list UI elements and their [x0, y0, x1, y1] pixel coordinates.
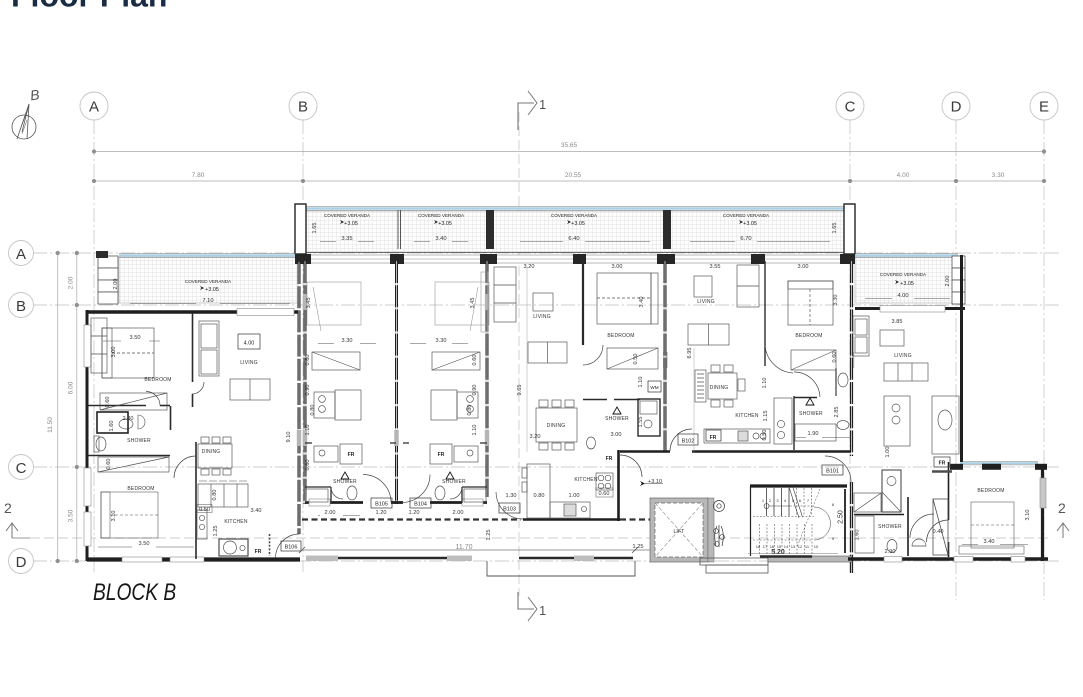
svg-text:0.60: 0.60: [599, 491, 610, 497]
svg-text:6.95: 6.95: [687, 348, 693, 359]
svg-text:7.80: 7.80: [192, 172, 205, 179]
svg-text:BEDROOM: BEDROOM: [127, 486, 154, 492]
svg-text:SHOWER: SHOWER: [127, 438, 151, 444]
svg-text:FR: FR: [710, 435, 717, 441]
svg-text:0.60: 0.60: [305, 460, 311, 471]
svg-text:1.15: 1.15: [763, 411, 769, 422]
svg-text:1.30: 1.30: [506, 493, 517, 499]
svg-text:B106: B106: [285, 545, 298, 551]
svg-text:3.30: 3.30: [833, 295, 839, 306]
svg-text:9.65: 9.65: [517, 385, 523, 396]
svg-text:B104: B104: [414, 502, 427, 508]
svg-text:2.00: 2.00: [68, 276, 75, 289]
svg-text:3.85: 3.85: [892, 319, 903, 325]
svg-text:LIVING: LIVING: [894, 353, 912, 359]
svg-text:3.00: 3.00: [111, 347, 117, 358]
svg-text:3.45: 3.45: [306, 298, 312, 309]
svg-text:COVERED VERANDA: COVERED VERANDA: [324, 213, 371, 218]
svg-text:2.85: 2.85: [834, 407, 840, 418]
svg-text:D: D: [951, 99, 962, 116]
svg-text:3.50: 3.50: [130, 335, 141, 341]
svg-text:C: C: [845, 99, 856, 116]
svg-text:6.70: 6.70: [740, 236, 751, 242]
svg-text:3.45: 3.45: [470, 298, 476, 309]
svg-text:D: D: [16, 554, 27, 571]
svg-text:0.60: 0.60: [832, 352, 838, 363]
svg-text:LIVING: LIVING: [240, 360, 258, 366]
svg-text:+3.05: +3.05: [900, 281, 914, 287]
svg-text:20.55: 20.55: [565, 172, 582, 179]
svg-text:3.50: 3.50: [139, 541, 150, 547]
svg-text:7.10: 7.10: [202, 298, 213, 304]
svg-text:2.00: 2.00: [113, 279, 119, 290]
svg-text:E: E: [1039, 99, 1049, 116]
svg-text:3.40: 3.40: [435, 236, 446, 242]
svg-text:SHOWER: SHOWER: [442, 479, 466, 485]
svg-text:35.65: 35.65: [561, 142, 578, 149]
svg-text:0.80: 0.80: [534, 493, 545, 499]
svg-text:17: 17: [763, 544, 768, 549]
svg-text:+3.05: +3.05: [344, 221, 358, 227]
svg-text:FR: FR: [348, 452, 355, 458]
svg-text:3.20: 3.20: [524, 264, 535, 270]
svg-text:1.25: 1.25: [486, 530, 492, 541]
svg-text:2: 2: [4, 500, 12, 516]
svg-text:LIVING: LIVING: [533, 314, 551, 320]
svg-text:9.10: 9.10: [286, 432, 292, 443]
svg-text:SHOWER: SHOWER: [333, 479, 357, 485]
svg-text:3.55: 3.55: [710, 264, 721, 270]
svg-text:12: 12: [798, 544, 803, 549]
svg-text:3.50: 3.50: [68, 509, 75, 522]
svg-text:10: 10: [814, 544, 819, 549]
svg-text:3.10: 3.10: [111, 511, 117, 522]
svg-text:3.40: 3.40: [639, 297, 645, 308]
svg-text:0.40: 0.40: [933, 529, 944, 535]
svg-text:1.65: 1.65: [312, 223, 318, 234]
svg-text:FR: FR: [438, 452, 445, 458]
svg-text:B101: B101: [826, 469, 839, 475]
svg-text:1: 1: [539, 97, 546, 112]
svg-text:1.00: 1.00: [569, 493, 580, 499]
svg-text:15: 15: [777, 544, 782, 549]
svg-text:3.10: 3.10: [1025, 510, 1031, 521]
svg-text:0.60: 0.60: [472, 355, 478, 366]
svg-text:18: 18: [756, 544, 761, 549]
svg-text:DINING: DINING: [547, 423, 566, 429]
svg-text:DINING: DINING: [710, 385, 729, 391]
svg-text:0.90: 0.90: [305, 385, 311, 396]
svg-text:COVERED VERANDA: COVERED VERANDA: [551, 213, 598, 218]
svg-text:1.20: 1.20: [409, 510, 420, 516]
svg-text:13: 13: [791, 544, 796, 549]
svg-text:0.50: 0.50: [199, 507, 210, 513]
svg-text:1.25: 1.25: [633, 544, 644, 550]
svg-text:+3.05: +3.05: [743, 221, 757, 227]
svg-text:WM: WM: [650, 385, 658, 390]
svg-text:COVERED VERANDA: COVERED VERANDA: [723, 213, 770, 218]
svg-text:A: A: [16, 246, 26, 263]
svg-text:DINING: DINING: [202, 449, 221, 455]
svg-text:BEDROOM: BEDROOM: [977, 488, 1004, 494]
svg-text:1.10: 1.10: [472, 425, 478, 436]
svg-text:FR: FR: [939, 461, 946, 467]
svg-text:BEDROOM: BEDROOM: [607, 333, 634, 339]
svg-text:1.90: 1.90: [808, 431, 819, 437]
svg-text:3.35: 3.35: [341, 236, 352, 242]
svg-text:0.60: 0.60: [106, 459, 112, 470]
svg-text:FR: FR: [255, 549, 262, 555]
svg-text:A: A: [89, 99, 99, 116]
svg-text:SHOWER: SHOWER: [878, 524, 902, 530]
svg-text:0.90: 0.90: [472, 385, 478, 396]
svg-text:0.80: 0.80: [212, 490, 218, 501]
svg-text:0.80: 0.80: [310, 405, 316, 416]
svg-text:1: 1: [539, 603, 546, 618]
svg-text:1.20: 1.20: [376, 510, 387, 516]
svg-text:2.30: 2.30: [123, 416, 134, 422]
svg-text:16: 16: [770, 544, 775, 549]
svg-text:3.00: 3.00: [611, 432, 622, 438]
svg-text:+3.05: +3.05: [571, 221, 585, 227]
svg-text:COVERED VERANDA: COVERED VERANDA: [185, 279, 232, 284]
svg-text:KITCHEN: KITCHEN: [574, 477, 598, 483]
svg-text:0.60: 0.60: [105, 397, 111, 408]
svg-text:4.00: 4.00: [897, 172, 910, 179]
svg-text:B: B: [16, 298, 26, 315]
svg-text:COVERED VERANDA: COVERED VERANDA: [880, 272, 927, 277]
svg-text:BEDROOM: BEDROOM: [795, 333, 822, 339]
svg-text:+3.05: +3.05: [438, 221, 452, 227]
svg-text:3.30: 3.30: [992, 172, 1005, 179]
svg-text:B103: B103: [503, 507, 516, 513]
svg-text:4.00: 4.00: [897, 293, 908, 299]
svg-text:+3.10: +3.10: [648, 479, 662, 485]
svg-text:1.60: 1.60: [109, 421, 115, 432]
svg-text:0.80: 0.80: [467, 405, 473, 416]
svg-text:C: C: [16, 460, 27, 477]
svg-text:3.00: 3.00: [798, 264, 809, 270]
svg-text:SHOWER: SHOWER: [605, 416, 629, 422]
svg-text:B102: B102: [682, 439, 695, 445]
svg-text:1.10: 1.10: [762, 378, 768, 389]
svg-text:Floor Plan: Floor Plan: [11, 0, 167, 14]
svg-text:2.00: 2.00: [325, 510, 336, 516]
svg-text:BEDROOM: BEDROOM: [144, 377, 171, 383]
svg-text:0.60: 0.60: [305, 355, 311, 366]
svg-text:3.30: 3.30: [342, 338, 353, 344]
svg-text:1.60: 1.60: [855, 530, 861, 541]
svg-text:1.65: 1.65: [832, 223, 838, 234]
svg-text:1.25: 1.25: [213, 526, 219, 537]
svg-text:14: 14: [784, 544, 789, 549]
svg-text:B: B: [298, 99, 308, 116]
svg-text:11.70: 11.70: [456, 544, 473, 551]
svg-text:1.10: 1.10: [638, 377, 644, 388]
svg-text:6.40: 6.40: [568, 236, 579, 242]
svg-text:COVERED VERANDA: COVERED VERANDA: [418, 213, 465, 218]
svg-text:KITCHEN: KITCHEN: [224, 519, 248, 525]
svg-text:LIFT: LIFT: [673, 529, 684, 535]
svg-text:BLOCK B: BLOCK B: [93, 578, 176, 606]
svg-text:LIVING: LIVING: [697, 299, 715, 305]
svg-text:1.00: 1.00: [885, 447, 891, 458]
svg-text:1.55: 1.55: [638, 417, 644, 428]
svg-text:B105: B105: [375, 502, 388, 508]
svg-text:FR: FR: [606, 456, 613, 462]
svg-text:0.50: 0.50: [633, 354, 639, 365]
svg-text:2.90: 2.90: [885, 549, 896, 555]
svg-text:2.50: 2.50: [838, 510, 845, 524]
svg-text:1.10: 1.10: [305, 425, 311, 436]
svg-text:4.00: 4.00: [244, 341, 255, 347]
svg-text:6.00: 6.00: [68, 381, 75, 394]
svg-text:2: 2: [1058, 500, 1066, 516]
svg-text:3.30: 3.30: [436, 338, 447, 344]
svg-text:3.00: 3.00: [612, 264, 623, 270]
svg-text:SHOWER: SHOWER: [799, 411, 823, 417]
svg-text:KITCHEN: KITCHEN: [735, 413, 759, 419]
svg-text:5.20: 5.20: [771, 549, 785, 556]
svg-text:2.00: 2.00: [453, 510, 464, 516]
svg-text:0.50: 0.50: [762, 430, 768, 441]
svg-text:3.40: 3.40: [251, 508, 262, 514]
svg-text:11.50: 11.50: [47, 417, 54, 433]
svg-text:+3.05: +3.05: [205, 287, 219, 293]
svg-text:3.40: 3.40: [984, 539, 995, 545]
svg-text:3.20: 3.20: [530, 434, 541, 440]
svg-text:2.00: 2.00: [945, 276, 951, 287]
